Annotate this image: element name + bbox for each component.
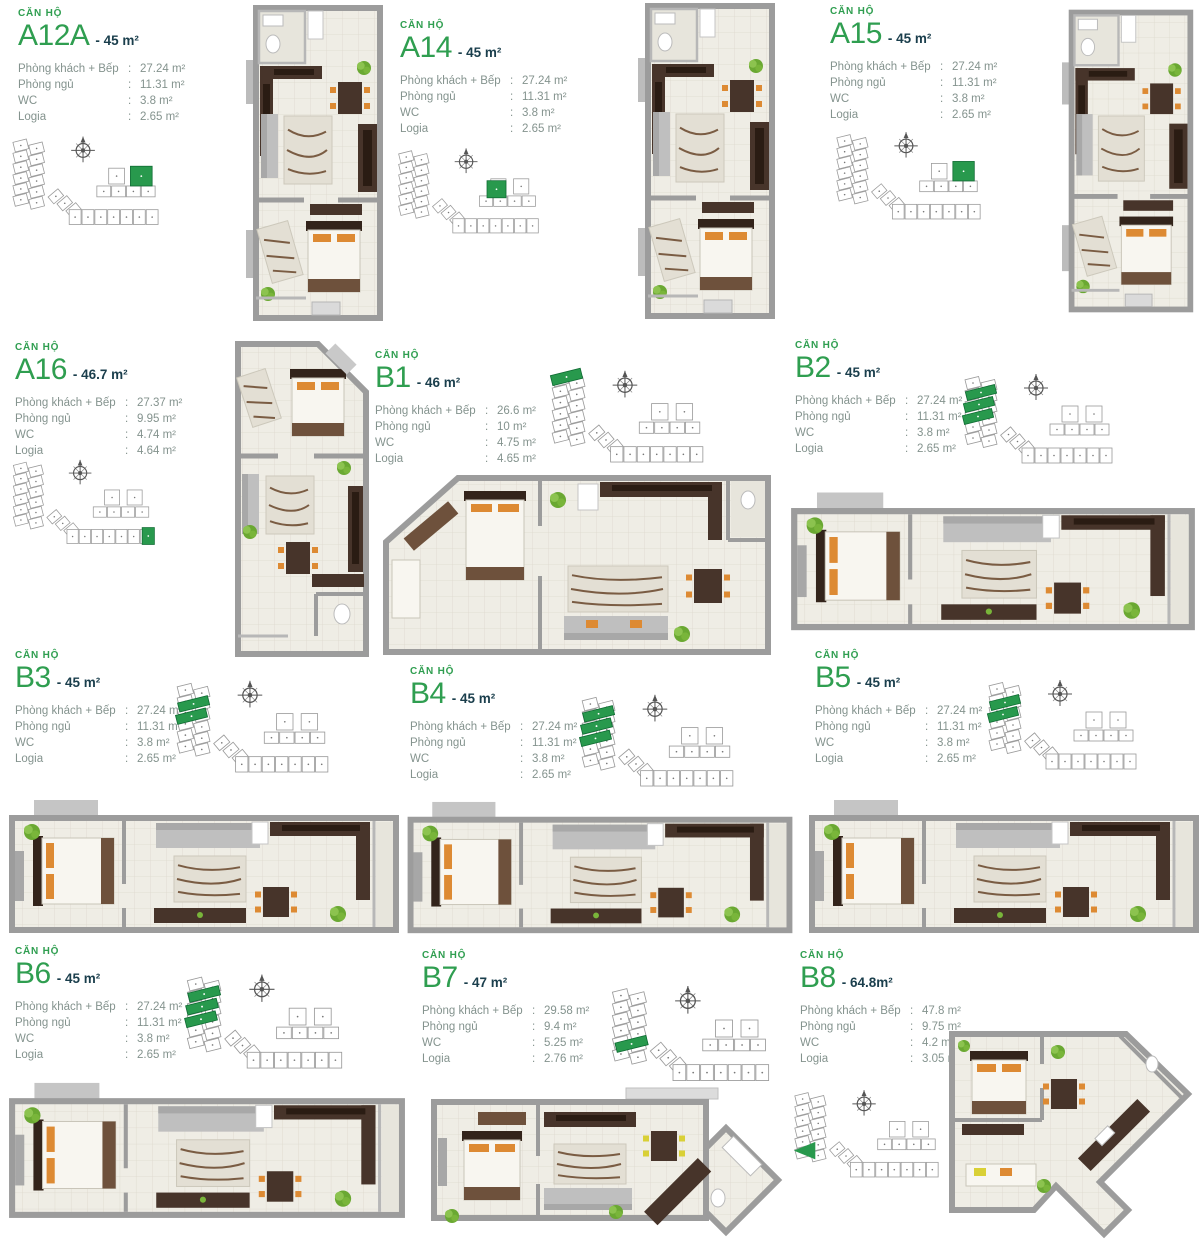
spec-colon: :: [910, 1003, 922, 1019]
unit-name: B8: [800, 962, 836, 994]
spec-label: Logia: [800, 1051, 910, 1067]
unit-type-label: CĂN HỘ: [800, 950, 1015, 961]
unit-card-b8: CĂN HỘ B8 - 64.8m² Phòng khách + Bếp:47.…: [0, 0, 1200, 1241]
spec-label: Phòng khách + Bếp: [800, 1003, 910, 1019]
spec-label: Phòng ngủ: [800, 1019, 910, 1035]
spec-colon: :: [910, 1051, 922, 1067]
unit-title: B8 - 64.8m²: [800, 962, 1015, 994]
site-locator-map: [788, 1082, 944, 1192]
unit-area: - 64.8m²: [842, 975, 893, 990]
floorplan-sheet: CĂN HỘ A12A - 45 m² Phòng khách + Bếp:27…: [0, 0, 1200, 1241]
spec-colon: :: [910, 1019, 922, 1035]
spec-colon: :: [910, 1035, 922, 1051]
floor-plan: [938, 1016, 1198, 1240]
spec-label: WC: [800, 1035, 910, 1051]
